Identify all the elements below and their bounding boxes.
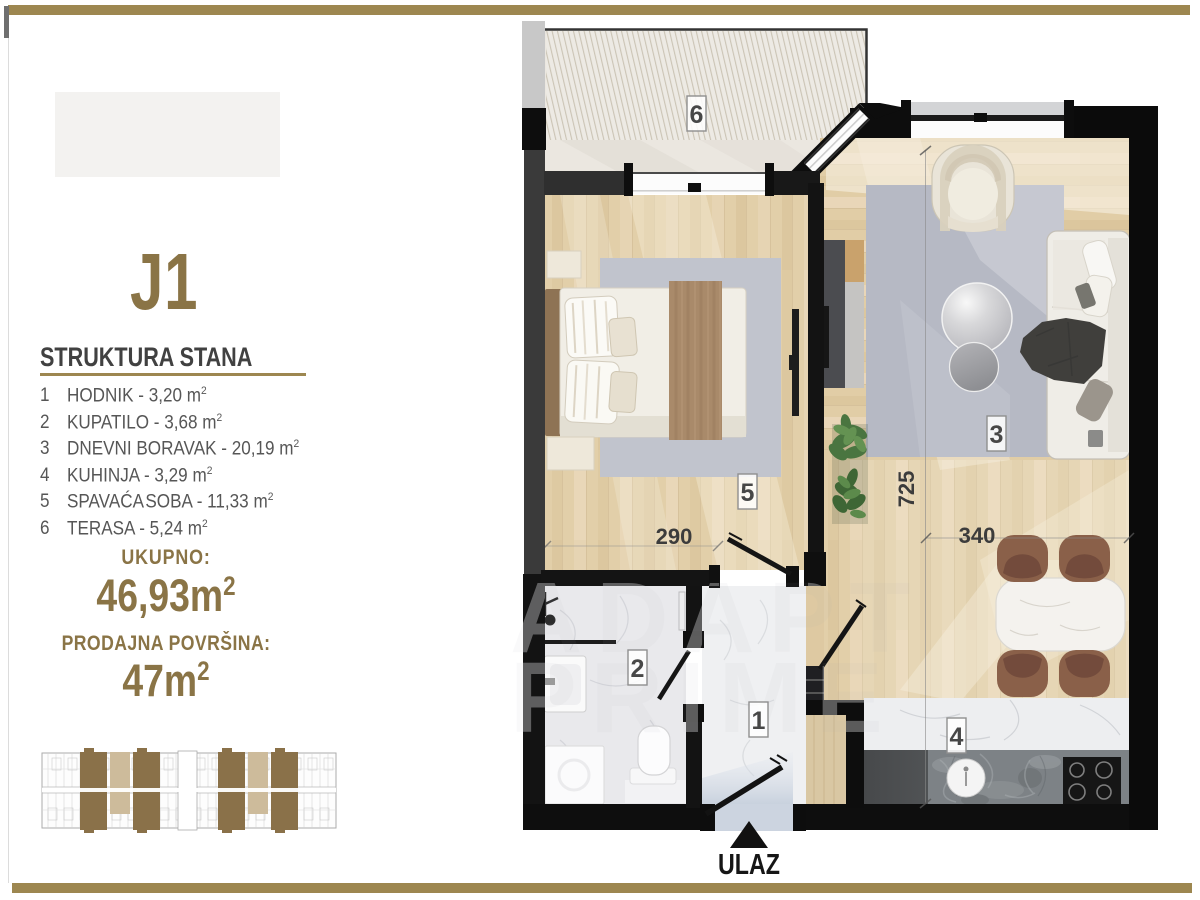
svg-text:2: 2 [631, 655, 645, 683]
svg-text:290: 290 [656, 524, 693, 549]
svg-text:4: 4 [950, 723, 964, 751]
svg-text:1: 1 [752, 707, 766, 735]
svg-text:3: 3 [990, 421, 1004, 449]
svg-text:725: 725 [894, 471, 919, 508]
svg-text:PRIME: PRIME [510, 642, 897, 754]
svg-text:340: 340 [959, 523, 996, 548]
svg-text:5: 5 [741, 479, 755, 507]
svg-text:ULAZ: ULAZ [718, 849, 780, 881]
svg-text:6: 6 [690, 101, 704, 129]
